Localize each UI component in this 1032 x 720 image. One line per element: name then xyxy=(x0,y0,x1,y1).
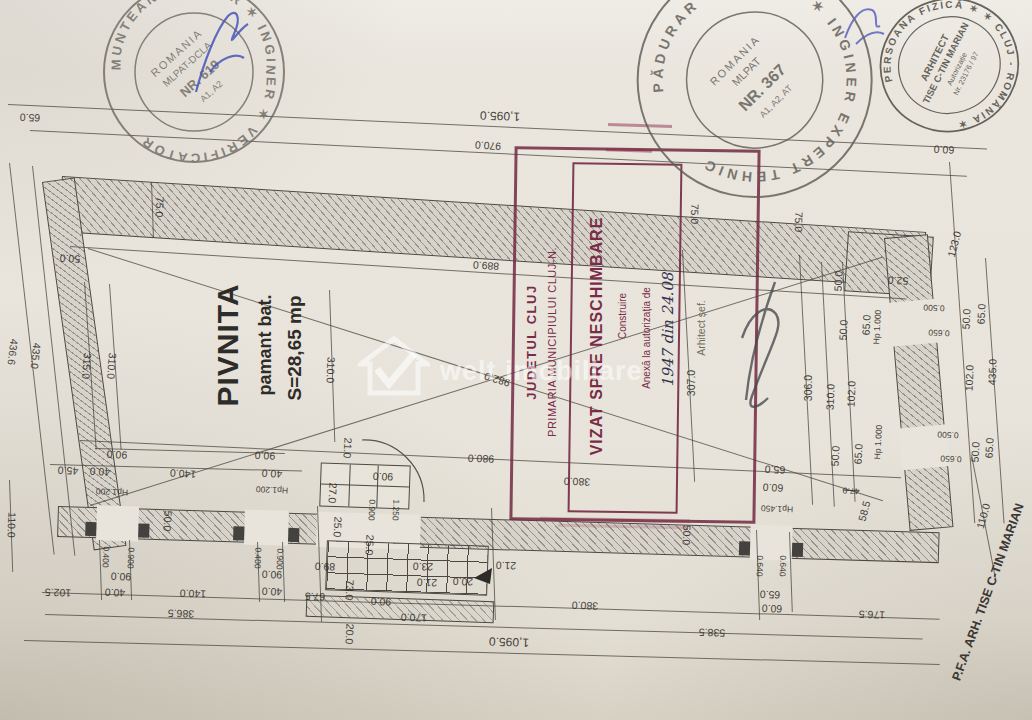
dimension-label: 60.0 xyxy=(762,481,783,494)
dimension-label: 65.0 xyxy=(20,112,41,125)
dimension-label: Hp1.450 xyxy=(761,503,793,514)
dimension-label: 65.0 xyxy=(760,589,781,602)
dimension-label: 75.0 xyxy=(153,196,166,217)
dimension-label: 110.0 xyxy=(6,512,19,538)
dimension-line xyxy=(789,532,793,612)
dimension-label: 52.0 xyxy=(887,274,908,287)
dimension-label: 65.0 xyxy=(859,314,872,335)
dimension-label: 0.400 xyxy=(100,546,111,568)
dimension-label: 380.0 xyxy=(572,600,599,613)
dimension-label: 25.0 xyxy=(331,516,344,537)
dimension-label: 40.0 xyxy=(105,587,126,600)
dimension-label: 90.0 xyxy=(262,569,283,582)
dimension-line xyxy=(985,258,1005,523)
dimension-label: 0.500 xyxy=(923,302,945,313)
dimension-label: 0.900 xyxy=(366,499,377,521)
dimension-label: 89.0 xyxy=(315,561,336,574)
dimension-label: 40.0 xyxy=(261,467,282,480)
room-material: pamant bat. xyxy=(255,294,276,395)
dimension-label: 102.0 xyxy=(963,365,976,392)
dimension-label: 50.0 xyxy=(968,441,981,462)
approval-stamp-annex: Anexă la autorizația de xyxy=(641,287,652,389)
dimension-label: 310.0 xyxy=(105,352,119,379)
dimension-label: 90.0 xyxy=(254,449,275,462)
dimension-label: 21.0 xyxy=(417,577,438,590)
dimension-label: 20.0 xyxy=(453,576,474,589)
dimension-label: 970.0 xyxy=(475,139,502,152)
dimension-label: 980.0 xyxy=(468,453,495,466)
dimension-label: 123.0 xyxy=(945,230,963,258)
dimension-label: 50.0 xyxy=(836,319,849,340)
dimension-label: 23.0 xyxy=(413,561,434,574)
dimension-label: 140.0 xyxy=(170,467,197,480)
dimension-label: Hp 1.000 xyxy=(872,425,884,460)
dimension-label: 65.0 xyxy=(764,463,785,476)
approval-stamp-county: JUDETUL CLUJ xyxy=(524,284,539,399)
dimension-line xyxy=(949,162,975,523)
dimension-label: 50.0 xyxy=(828,445,841,466)
approval-stamp-city: PRIMARIA MUNICIPIULUI CLUJ-N. xyxy=(546,247,558,437)
dimension-label: 60.0 xyxy=(933,143,954,156)
dimension-label: 60.0 xyxy=(762,603,783,616)
dimension-label: 75.0 xyxy=(793,212,805,233)
dimension-label: 436.6 xyxy=(5,338,20,366)
dimension-label: 50.0 xyxy=(59,252,80,265)
dimension-label: 21.0 xyxy=(496,560,517,573)
approval-stamp-signer: Arhitect șef. xyxy=(695,300,707,355)
dimension-label: 0.640 xyxy=(755,555,766,577)
dimension-label: 170.0 xyxy=(401,612,428,625)
dimension-label: 45.0 xyxy=(57,464,78,477)
dimension-label: 65.0 xyxy=(851,443,864,464)
dimension-label: 310.0 xyxy=(824,384,837,411)
dimension-label: 90.0 xyxy=(371,596,392,609)
dimension-label: 102.5 xyxy=(45,587,72,600)
dimension-label: 176.5 xyxy=(859,609,886,622)
dimension-label: 20.0 xyxy=(343,623,356,644)
dimension-label: 0.500 xyxy=(937,429,959,440)
dimension-label: 0.900 xyxy=(125,547,136,569)
dimension-label: 47.0 xyxy=(842,486,859,497)
dimension-label: 65.0 xyxy=(982,437,995,458)
dimension-label: 90.0 xyxy=(106,448,127,461)
dimension-label: 73.0 xyxy=(343,579,356,600)
dimension-line xyxy=(24,640,940,665)
dimension-label: 889.0 xyxy=(473,259,500,272)
dimension-label: 0.400 xyxy=(252,547,263,569)
dimension-label: 58.5 xyxy=(856,500,873,523)
dimension-label: 1,095.0 xyxy=(480,108,521,123)
dimension-label: Hp1.200 xyxy=(256,484,289,496)
approval-stamp-title: VIZAT SPRE NESCHIMBARE xyxy=(588,217,606,456)
dimension-label: 21.0 xyxy=(341,437,354,458)
dimension-label: 435.0 xyxy=(29,342,44,369)
dimension-label: Hp1.200 xyxy=(96,486,129,498)
dimension-label: 1.250 xyxy=(390,499,401,521)
dimension-label: 435.0 xyxy=(986,359,999,386)
approval-stamp-handwritten-number: 1947 din 24.08 xyxy=(659,273,677,388)
dimension-label: 0.650 xyxy=(928,327,950,338)
dimension-label: 306.0 xyxy=(802,375,814,401)
dimension-label: 40.0 xyxy=(89,465,110,478)
dimension-label: 0.650 xyxy=(940,453,962,464)
dimension-label: 27.0 xyxy=(326,482,339,503)
dimension-label: 50.0 xyxy=(959,308,972,329)
dimension-label: 310.0 xyxy=(325,357,338,384)
dimension-label: 1,095.0 xyxy=(489,634,530,649)
scanned-floor-plan: 65.01,095.0970.0889.060.075.050.0436.643… xyxy=(0,0,1032,720)
dimension-label: 50.0 xyxy=(161,510,174,531)
room-name: PIVNITA xyxy=(211,283,245,406)
dimension-line xyxy=(30,130,967,177)
dimension-label: 315.0 xyxy=(80,352,94,379)
dimension-label: 538.5 xyxy=(699,627,726,640)
dimension-label: 90.0 xyxy=(111,571,132,584)
dimension-label: 110.0 xyxy=(974,502,992,530)
room-area: S=28,65 mp xyxy=(284,295,306,400)
dimension-label: 140.0 xyxy=(180,588,207,601)
dimension-label: 65.0 xyxy=(974,303,987,324)
dimension-label: Hp 1.000 xyxy=(871,310,883,345)
dimension-label: 102.0 xyxy=(845,381,858,408)
dimension-label: 67.5 xyxy=(305,591,326,604)
dimension-label: 386.5 xyxy=(168,608,195,621)
dimension-label: 0.640 xyxy=(778,555,789,577)
dimension-label: 50.0 xyxy=(831,270,844,291)
dimension-label: 25.0 xyxy=(363,534,376,555)
dimension-label: 90.0 xyxy=(373,471,394,484)
approval-stamp-subtitle: Construire xyxy=(617,293,628,339)
dimension-label: 0.900 xyxy=(274,548,285,570)
dimension-label: 40.0 xyxy=(262,586,283,599)
dimension-line xyxy=(70,246,906,300)
